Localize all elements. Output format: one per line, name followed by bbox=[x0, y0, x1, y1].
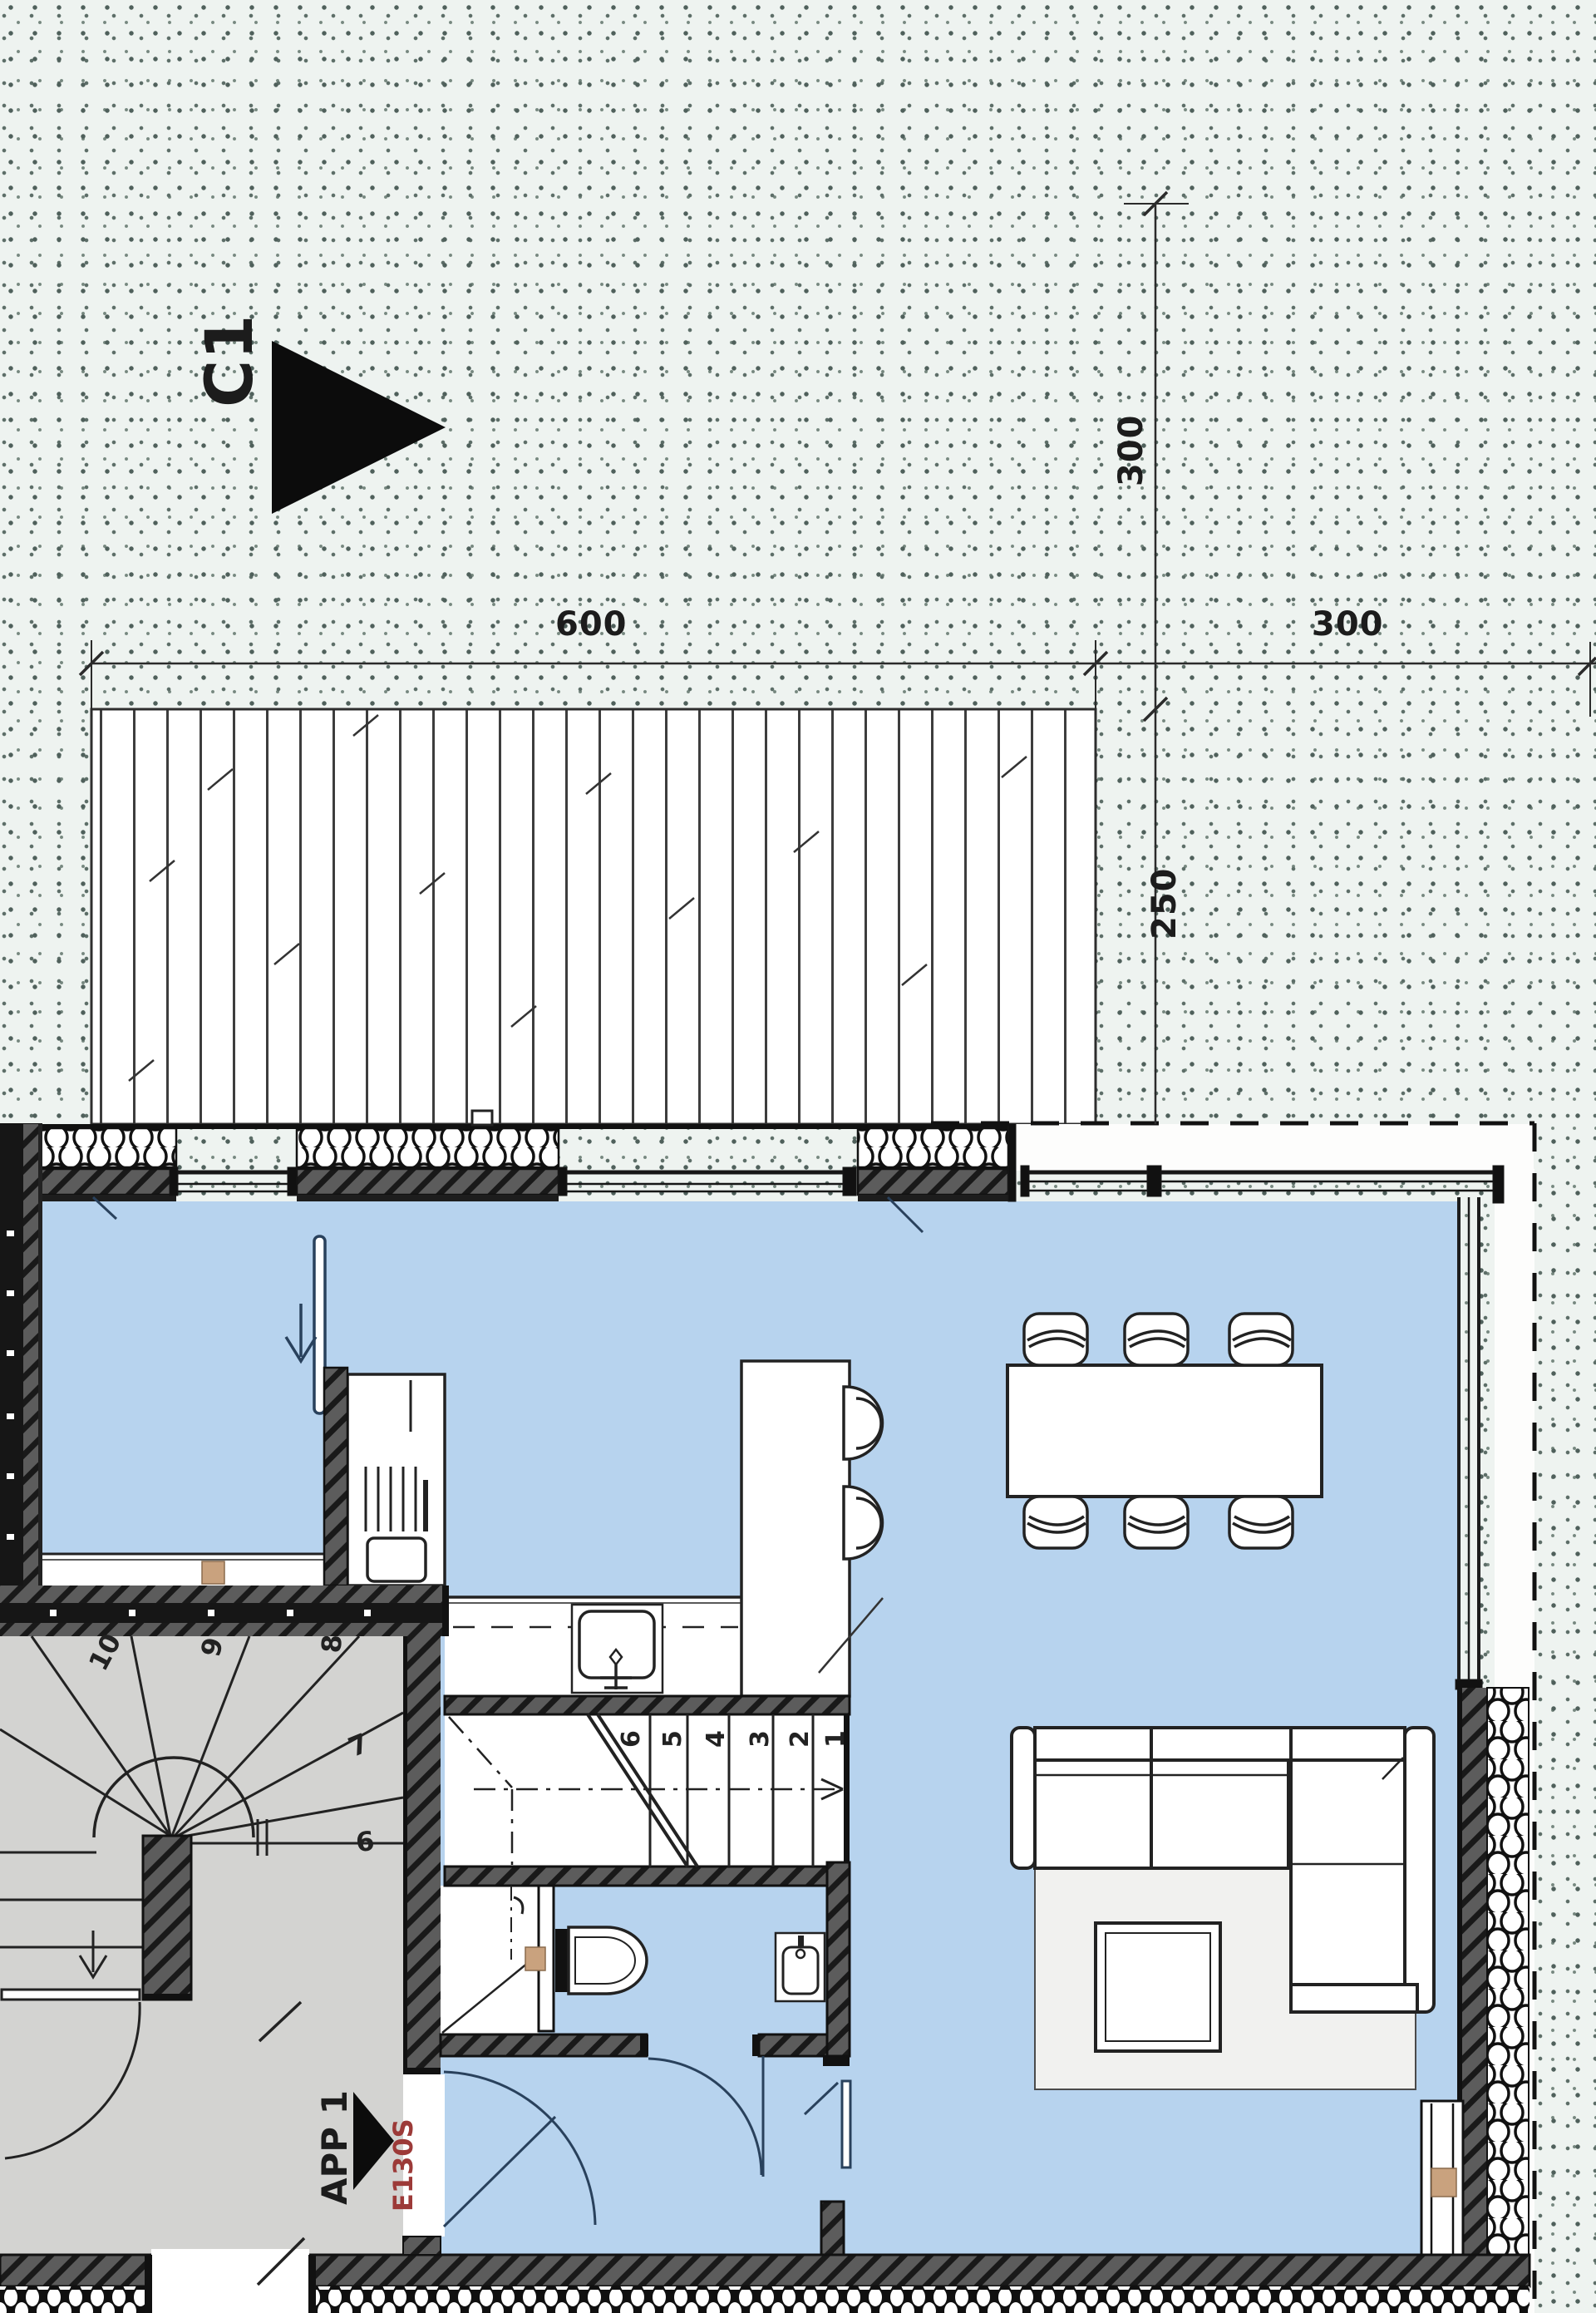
chair bbox=[1229, 1497, 1293, 1548]
chair bbox=[1125, 1497, 1188, 1548]
winder-number: 8 bbox=[315, 1634, 347, 1655]
washbasin-icon bbox=[776, 1933, 825, 2001]
chair bbox=[1229, 1314, 1293, 1365]
tread-number: 1 bbox=[821, 1730, 850, 1748]
door-code-label: E130S bbox=[387, 2118, 419, 2212]
floor-plan-canvas: 600 300 300 250 C1 APP 1 E130S 6 5 4 3 2… bbox=[0, 0, 1596, 2313]
toilet-icon bbox=[555, 1927, 647, 1994]
dim-label-250-side: 250 bbox=[1145, 868, 1184, 940]
section-marker-label: C1 bbox=[193, 314, 268, 407]
apartment-label: APP 1 bbox=[314, 2090, 355, 2205]
kitchen-island bbox=[741, 1361, 850, 1696]
corner-mullion bbox=[1147, 1166, 1161, 1196]
chair bbox=[1024, 1314, 1087, 1365]
chair bbox=[1024, 1497, 1087, 1548]
wood-post bbox=[202, 1561, 224, 1584]
wood-post bbox=[1431, 2168, 1456, 2197]
deck-terrace bbox=[91, 709, 1096, 1124]
wall-stub bbox=[324, 1368, 347, 1586]
stair-newel-wall bbox=[143, 1836, 191, 2000]
entry-door-leaf-open bbox=[2, 1990, 140, 2000]
corner-glazing-band bbox=[1021, 1166, 1504, 1203]
right-wall-solid bbox=[1457, 1688, 1529, 2255]
tread-number: 2 bbox=[786, 1730, 815, 1748]
coffee-table bbox=[1096, 1923, 1220, 2051]
tread-number: 6 bbox=[617, 1730, 646, 1748]
facade-notch bbox=[472, 1111, 492, 1125]
right-wall-glazing bbox=[1456, 1197, 1482, 1689]
wood-post bbox=[525, 1947, 545, 1970]
dining-table bbox=[1007, 1365, 1322, 1497]
right-bottom-window bbox=[1421, 2101, 1463, 2257]
winder-number: 6 bbox=[354, 1825, 376, 1858]
tread-number: 4 bbox=[702, 1730, 731, 1748]
dim-label-600: 600 bbox=[555, 605, 628, 644]
section-cut-arrow-icon bbox=[272, 341, 446, 514]
dim-label-300-top: 300 bbox=[1312, 605, 1384, 644]
appliance bbox=[367, 1538, 426, 1581]
left-wall bbox=[0, 1124, 42, 1586]
chair bbox=[1125, 1314, 1188, 1365]
dim-label-300-side: 300 bbox=[1112, 415, 1150, 487]
tread-number: 5 bbox=[658, 1730, 687, 1748]
tread-number: 3 bbox=[746, 1730, 775, 1748]
kitchen-sink-icon bbox=[572, 1605, 663, 1693]
